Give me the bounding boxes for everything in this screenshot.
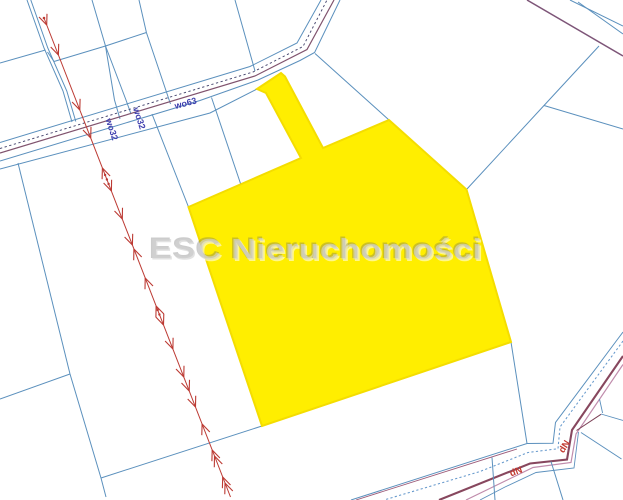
svg-text:ESC Nieruchomości: ESC Nieruchomości — [150, 234, 482, 267]
